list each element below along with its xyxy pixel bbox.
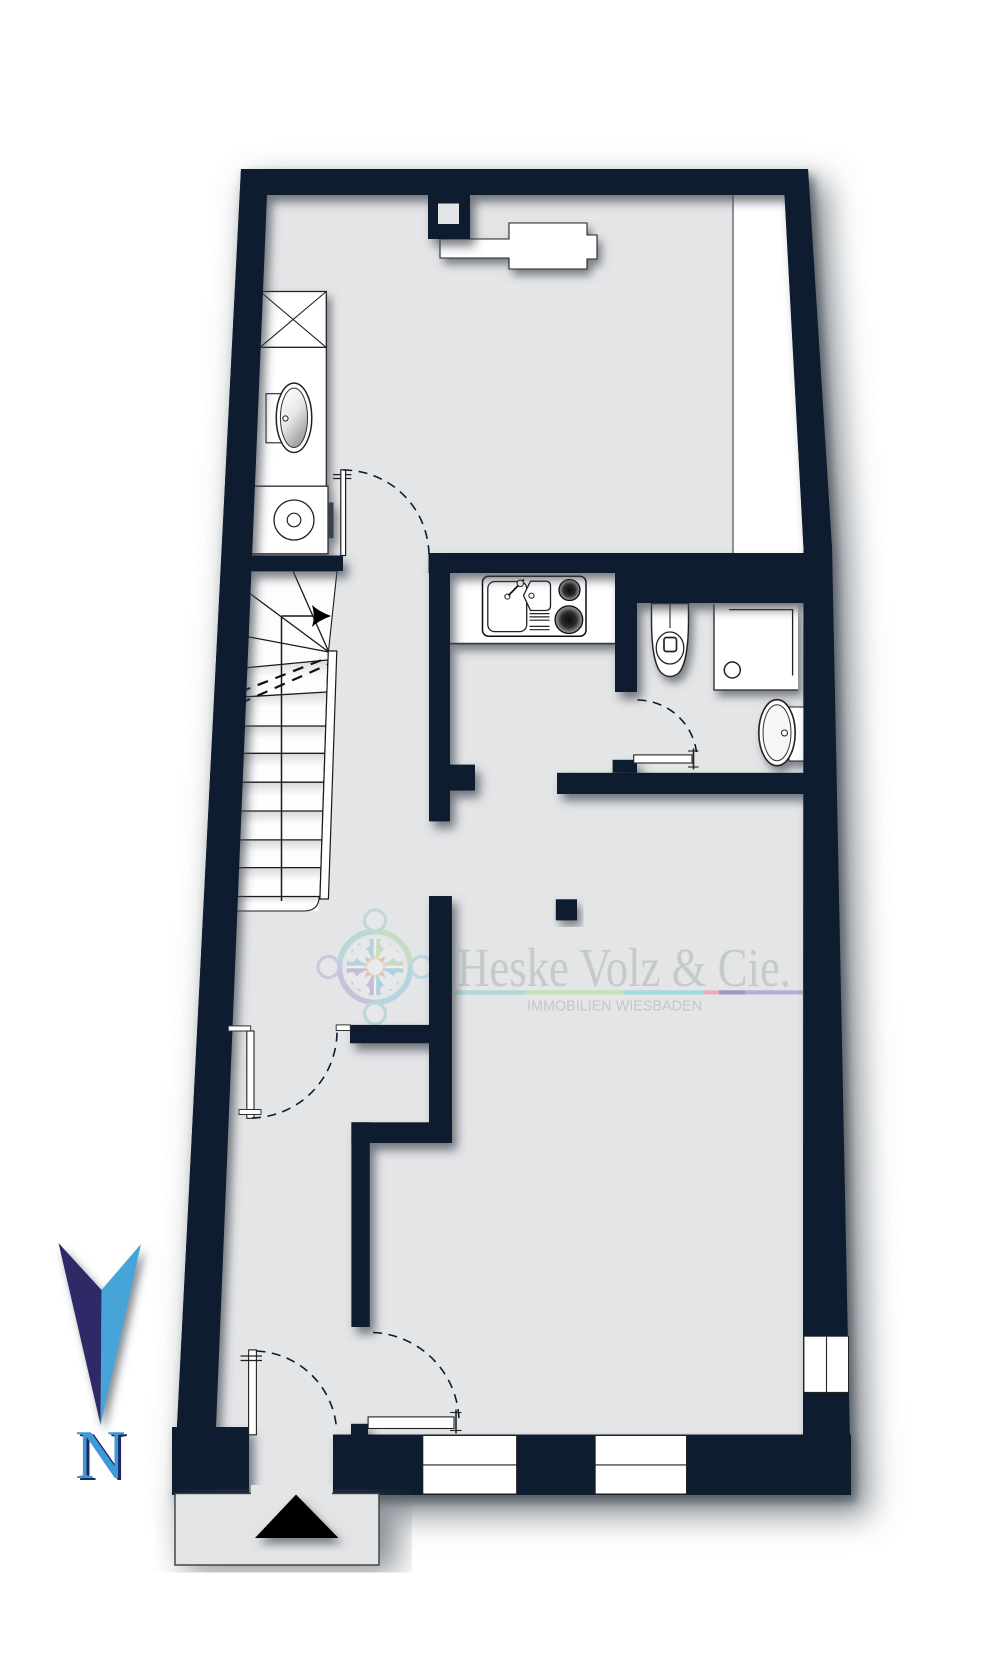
svg-text:Heske Volz & Cie.: Heske Volz & Cie. <box>457 937 791 998</box>
svg-text:IMMOBILIEN WIESBADEN: IMMOBILIEN WIESBADEN <box>527 999 702 1015</box>
svg-text:N: N <box>75 1417 126 1494</box>
